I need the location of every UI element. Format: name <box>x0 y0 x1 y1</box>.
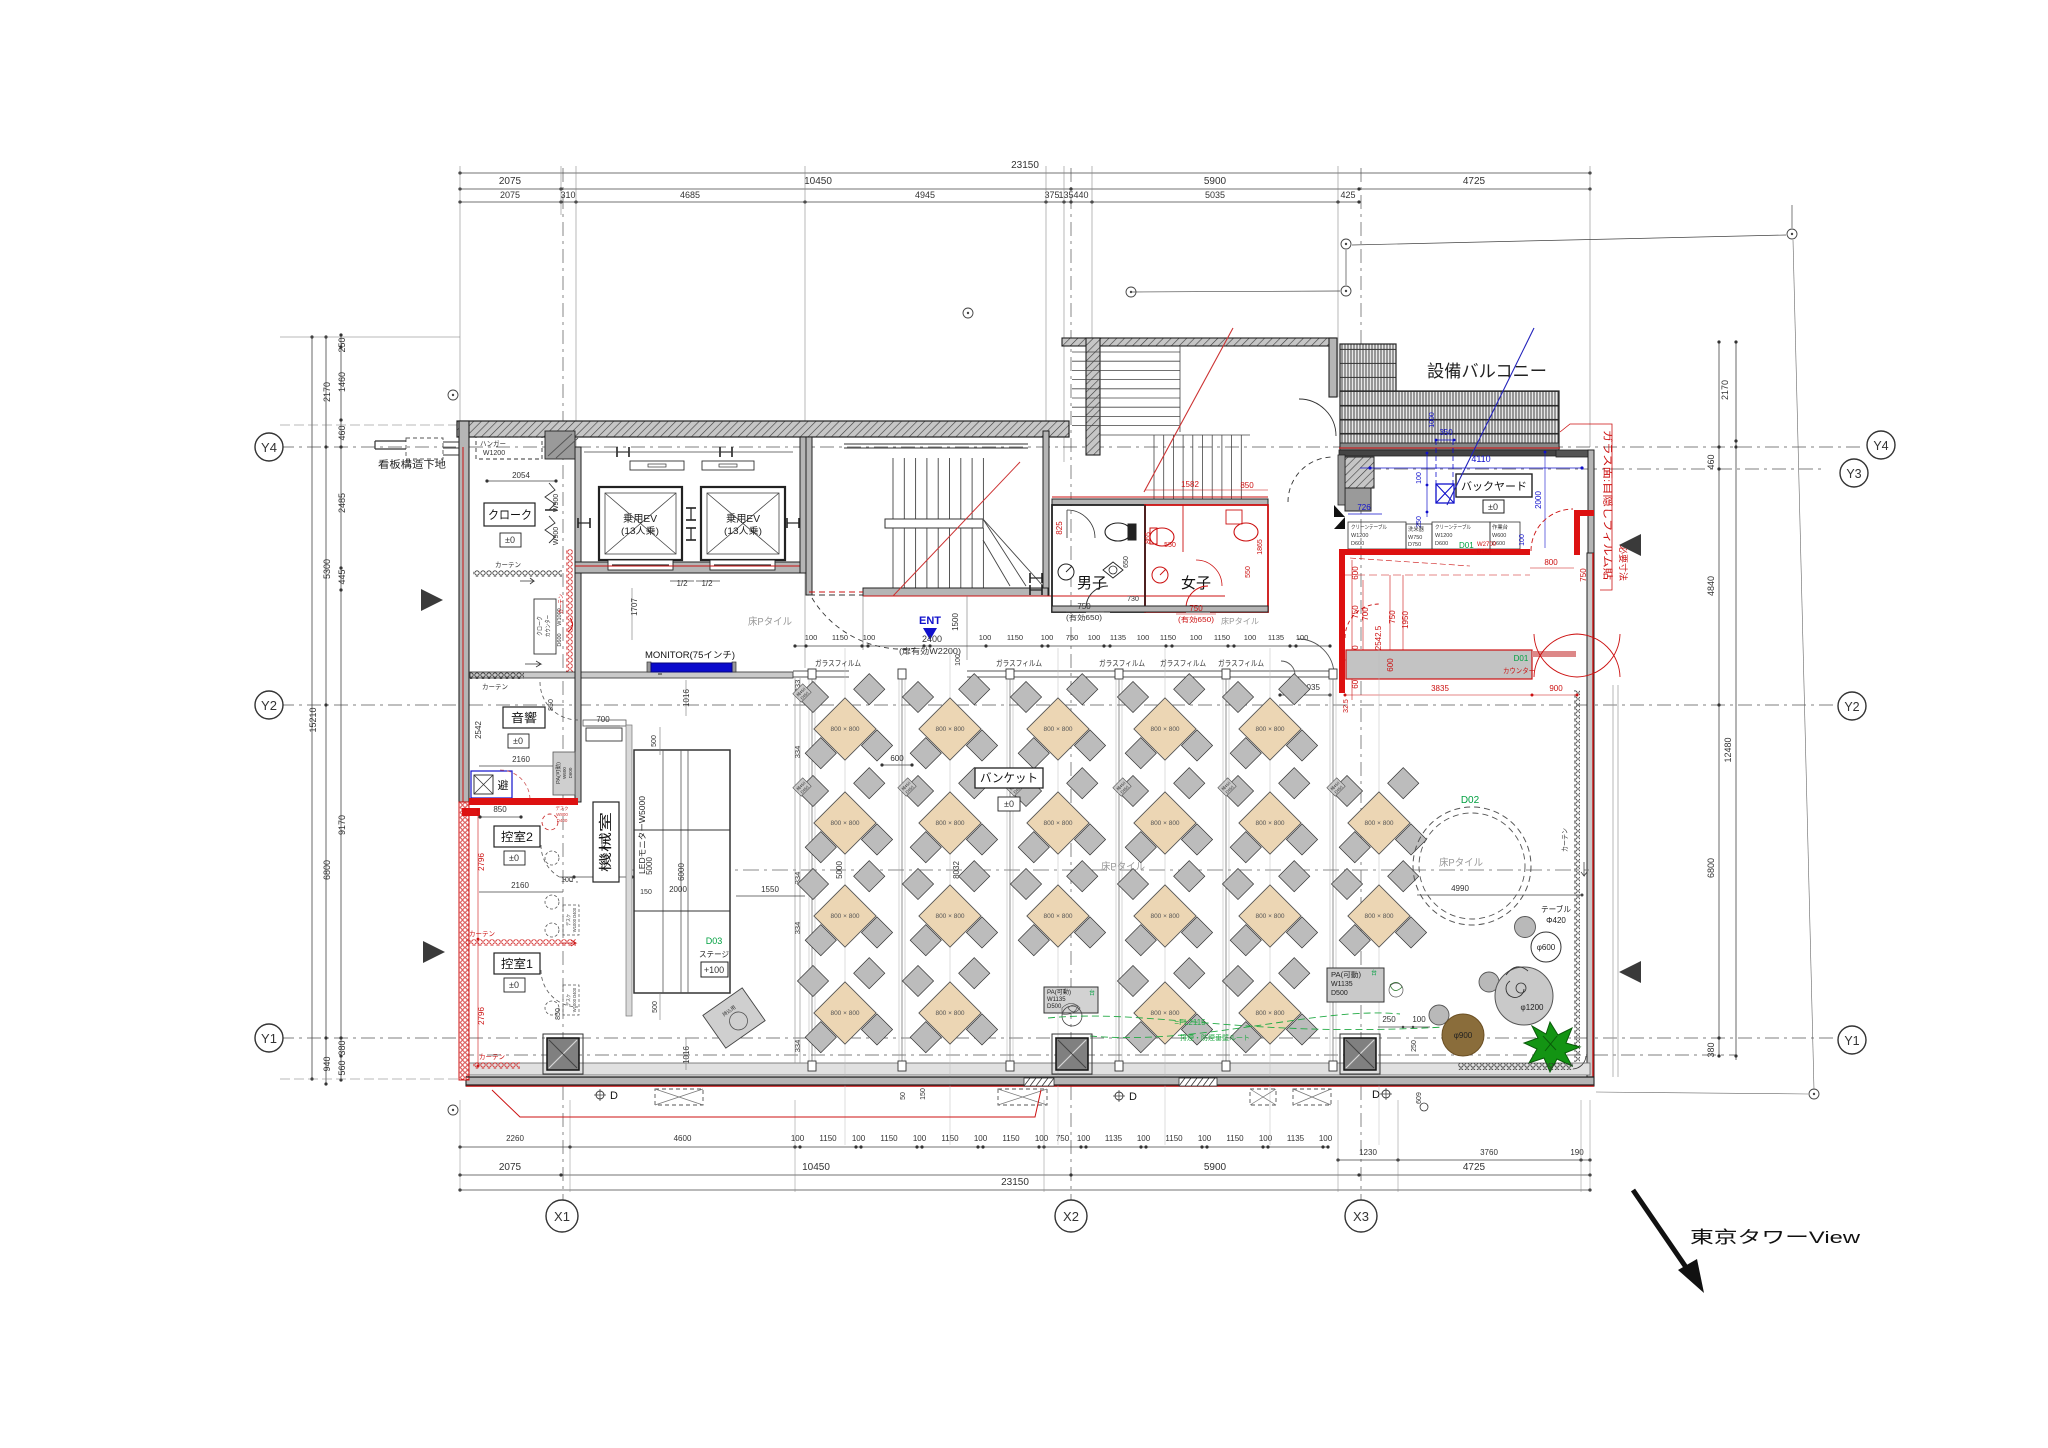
svg-text:PA(可動): PA(可動) <box>1331 970 1361 979</box>
svg-text:250: 250 <box>1382 1015 1396 1024</box>
svg-text:台: 台 <box>1089 989 1095 997</box>
svg-text:Y4: Y4 <box>261 440 277 455</box>
svg-text:500: 500 <box>651 735 658 747</box>
svg-text:Y1: Y1 <box>1844 1034 1859 1048</box>
svg-text:100: 100 <box>1296 633 1309 642</box>
svg-text:380: 380 <box>1706 1042 1716 1057</box>
svg-text:1135: 1135 <box>1105 1134 1123 1143</box>
svg-text:750: 750 <box>1189 604 1203 613</box>
svg-text:850: 850 <box>1240 481 1254 490</box>
svg-text:デスク: デスク <box>556 805 569 812</box>
svg-text:1000: 1000 <box>1429 412 1436 428</box>
svg-text:1150: 1150 <box>941 1134 959 1143</box>
svg-text:100: 100 <box>979 633 992 642</box>
svg-text:334: 334 <box>793 1040 802 1053</box>
svg-text:(13人乗): (13人乗) <box>621 525 659 536</box>
svg-text:W750: W750 <box>1408 535 1422 541</box>
svg-text:D600: D600 <box>557 633 563 646</box>
svg-text:1550: 1550 <box>761 885 779 894</box>
svg-text:100: 100 <box>1319 1134 1333 1143</box>
svg-text:Y2: Y2 <box>261 698 277 713</box>
svg-text:100: 100 <box>1077 1134 1091 1143</box>
svg-text:カーテン: カーテン <box>469 930 495 938</box>
svg-text:750: 750 <box>1579 568 1588 582</box>
svg-text:テーブル: テーブル <box>1541 904 1571 914</box>
svg-text:6800: 6800 <box>1706 858 1716 878</box>
svg-text:750: 750 <box>1388 610 1397 624</box>
svg-text:600: 600 <box>1351 566 1360 580</box>
svg-text:3835: 3835 <box>1431 684 1449 693</box>
svg-text:600: 600 <box>890 754 904 763</box>
svg-text:100: 100 <box>1190 633 1203 642</box>
svg-text:440: 440 <box>1073 190 1088 200</box>
svg-text:排煙・防煙垂壁ルート: 排煙・防煙垂壁ルート <box>1180 1033 1250 1042</box>
svg-text:100: 100 <box>561 877 573 884</box>
svg-text:1707: 1707 <box>630 598 639 616</box>
svg-text:4990: 4990 <box>1451 884 1469 893</box>
svg-text:4110: 4110 <box>1471 454 1490 464</box>
svg-text:100: 100 <box>1412 1015 1426 1024</box>
svg-text:W1135: W1135 <box>1331 981 1353 988</box>
svg-text:D: D <box>1129 1091 1137 1103</box>
svg-text:2160: 2160 <box>512 755 530 764</box>
svg-text:設備バルコニー: 設備バルコニー <box>1427 362 1547 381</box>
svg-text:2796: 2796 <box>477 853 486 871</box>
svg-text:W1000 D400: W1000 D400 <box>572 987 577 1012</box>
svg-text:865: 865 <box>1145 532 1152 544</box>
svg-text:375: 375 <box>1044 190 1059 200</box>
svg-text:100: 100 <box>863 633 876 642</box>
svg-text:カウンター: カウンター <box>544 615 552 637</box>
svg-text:音響: 音響 <box>511 710 537 725</box>
svg-text:D: D <box>610 1090 618 1102</box>
svg-text:100: 100 <box>1137 1134 1151 1143</box>
svg-text:D: D <box>1372 1089 1380 1101</box>
svg-text:±0: ±0 <box>1488 502 1498 512</box>
svg-text:380: 380 <box>337 1040 347 1055</box>
svg-text:ENT: ENT <box>919 615 941 627</box>
svg-text:12480: 12480 <box>1723 737 1733 762</box>
svg-text:100: 100 <box>913 1134 927 1143</box>
svg-text:100: 100 <box>1041 633 1054 642</box>
svg-text:Y2: Y2 <box>1844 700 1859 714</box>
svg-text:600: 600 <box>1386 658 1395 672</box>
svg-text:100: 100 <box>791 1134 805 1143</box>
svg-text:MONITOR(75インチ): MONITOR(75インチ) <box>645 650 735 660</box>
svg-text:クローク: クローク <box>488 508 532 522</box>
svg-text:乗用EV: 乗用EV <box>726 513 760 525</box>
svg-text:850: 850 <box>493 805 507 814</box>
svg-text:=FL2115: =FL2115 <box>1174 1018 1206 1027</box>
svg-text:2075: 2075 <box>499 1162 522 1173</box>
svg-text:1135: 1135 <box>1287 1134 1305 1143</box>
svg-text:必要寸法: 必要寸法 <box>1618 545 1629 581</box>
svg-text:2075: 2075 <box>500 190 520 200</box>
svg-text:560: 560 <box>337 1060 347 1075</box>
svg-text:2260: 2260 <box>506 1134 524 1143</box>
svg-text:445: 445 <box>337 569 347 584</box>
svg-text:1/2: 1/2 <box>676 579 688 588</box>
svg-text:クリーンテーブル: クリーンテーブル <box>1435 523 1471 531</box>
svg-text:バンケット: バンケット <box>980 771 1038 785</box>
svg-text:2170: 2170 <box>1720 380 1730 400</box>
svg-text:W2700: W2700 <box>1477 542 1497 548</box>
svg-text:1460: 1460 <box>337 372 347 392</box>
svg-text:カーテン: カーテン <box>1561 828 1569 852</box>
svg-text:控室2: 控室2 <box>501 829 533 844</box>
svg-text:クローク: クローク <box>537 616 544 636</box>
svg-text:D400: D400 <box>557 818 568 823</box>
svg-text:2000: 2000 <box>1534 491 1543 509</box>
svg-text:550: 550 <box>1245 566 1252 578</box>
svg-text:バックヤード: バックヤード <box>1461 480 1527 493</box>
svg-text:5035: 5035 <box>1205 190 1225 200</box>
svg-text:460: 460 <box>337 425 347 440</box>
svg-text:乗用EV: 乗用EV <box>623 513 657 525</box>
svg-text:23150: 23150 <box>1011 160 1039 171</box>
svg-text:ガラスフィルム: ガラスフィルム <box>996 658 1042 668</box>
svg-text:150: 150 <box>920 1088 927 1100</box>
svg-text:洗米器: 洗米器 <box>1408 525 1424 533</box>
svg-text:カウンター: カウンター <box>1503 666 1535 675</box>
svg-text:床Pタイル: 床Pタイル <box>1101 860 1145 873</box>
svg-text:1500: 1500 <box>951 613 960 631</box>
svg-text:W1200: W1200 <box>483 450 505 457</box>
svg-text:2485: 2485 <box>337 493 347 513</box>
svg-text:W1000 D400: W1000 D400 <box>572 907 577 932</box>
svg-text:機械室: 機械室 <box>598 812 613 872</box>
svg-text:190: 190 <box>1570 1148 1584 1157</box>
svg-text:D01: D01 <box>1459 541 1474 550</box>
svg-text:1150: 1150 <box>1007 633 1023 642</box>
svg-text:100: 100 <box>1259 1134 1273 1143</box>
svg-text:825: 825 <box>1055 521 1064 535</box>
svg-text:クリーンテーブル: クリーンテーブル <box>1351 523 1387 531</box>
svg-text:5000: 5000 <box>645 857 654 875</box>
svg-text:700: 700 <box>596 715 610 724</box>
svg-text:カーテン: カーテン <box>479 1053 505 1061</box>
svg-text:100: 100 <box>1244 633 1257 642</box>
svg-text:2000: 2000 <box>669 885 687 894</box>
svg-text:100: 100 <box>1088 633 1101 642</box>
svg-text:550: 550 <box>1164 542 1176 549</box>
svg-text:カーテン: カーテン <box>558 594 565 614</box>
svg-text:800: 800 <box>1544 558 1558 567</box>
svg-text:W1200: W1200 <box>1351 533 1368 539</box>
svg-text:男子: 男子 <box>1077 575 1107 592</box>
svg-text:1150: 1150 <box>1002 1134 1020 1143</box>
svg-text:100: 100 <box>1519 534 1526 546</box>
svg-text:2400: 2400 <box>922 634 942 644</box>
svg-text:334: 334 <box>793 922 802 935</box>
svg-text:作業台: 作業台 <box>1492 523 1508 531</box>
svg-text:PA(可動): PA(可動) <box>1047 988 1071 996</box>
svg-text:Y4: Y4 <box>1873 439 1888 453</box>
svg-text:±0: ±0 <box>509 853 519 863</box>
svg-text:1135: 1135 <box>1110 633 1126 642</box>
svg-text:10450: 10450 <box>802 1162 830 1173</box>
svg-text:ステージ: ステージ <box>699 950 729 959</box>
svg-text:850: 850 <box>548 699 555 711</box>
svg-text:ガラス面:目隠しフィルム貼: ガラス面:目隠しフィルム貼 <box>1601 430 1614 580</box>
svg-text:床Pタイル: 床Pタイル <box>1439 856 1483 869</box>
svg-text:台: 台 <box>1371 969 1377 977</box>
svg-text:1582: 1582 <box>1181 480 1199 489</box>
svg-text:250: 250 <box>1411 1040 1418 1052</box>
svg-text:±0: ±0 <box>505 535 515 545</box>
svg-text:±0: ±0 <box>509 980 519 990</box>
svg-text:650: 650 <box>1123 556 1130 568</box>
svg-text:1865: 1865 <box>1257 539 1264 555</box>
svg-text:X1: X1 <box>554 1209 570 1224</box>
svg-text:750: 750 <box>1066 633 1079 642</box>
svg-text:15210: 15210 <box>308 707 318 732</box>
svg-text:500: 500 <box>652 1001 659 1013</box>
svg-text:±0: ±0 <box>513 736 523 746</box>
svg-text:5900: 5900 <box>1204 176 1227 187</box>
svg-text:ガラスフィルム: ガラスフィルム <box>815 658 861 668</box>
svg-text:X2: X2 <box>1063 1209 1079 1224</box>
svg-text:1150: 1150 <box>819 1134 837 1143</box>
svg-text:避: 避 <box>498 778 509 792</box>
svg-text:2170: 2170 <box>322 382 332 402</box>
svg-text:460: 460 <box>1706 454 1716 469</box>
svg-text:150: 150 <box>640 889 652 896</box>
svg-text:9170: 9170 <box>337 815 347 835</box>
svg-text:PA(可動): PA(可動) <box>555 762 562 784</box>
svg-text:1230: 1230 <box>1359 1148 1377 1157</box>
svg-text:750: 750 <box>1077 602 1091 611</box>
svg-text:50: 50 <box>900 1092 907 1100</box>
svg-text:D01: D01 <box>1514 654 1529 663</box>
svg-text:100: 100 <box>1137 633 1150 642</box>
svg-text:±0: ±0 <box>1004 799 1014 809</box>
svg-text:3760: 3760 <box>1480 1148 1498 1157</box>
svg-text:4600: 4600 <box>674 1134 692 1143</box>
svg-text:ガラスフィルム: ガラスフィルム <box>1099 658 1145 668</box>
svg-text:D500: D500 <box>1047 1004 1062 1010</box>
svg-text:東京タワーView: 東京タワーView <box>1690 1228 1861 1247</box>
svg-text:23150: 23150 <box>1001 1177 1029 1188</box>
svg-text:W800: W800 <box>556 812 568 817</box>
svg-text:100: 100 <box>974 1134 988 1143</box>
svg-text:100: 100 <box>852 1134 866 1143</box>
svg-text:1150: 1150 <box>832 633 848 642</box>
svg-text:1016: 1016 <box>682 1046 691 1064</box>
svg-text:X3: X3 <box>1353 1209 1369 1224</box>
svg-text:1150: 1150 <box>880 1134 898 1143</box>
svg-text:φ900: φ900 <box>1454 1031 1473 1040</box>
svg-text:φ1200: φ1200 <box>1521 1003 1545 1012</box>
svg-text:カーテン: カーテン <box>482 683 508 691</box>
svg-text:2542.5: 2542.5 <box>1374 625 1383 650</box>
svg-text:100: 100 <box>1198 1134 1212 1143</box>
svg-text:φ600: φ600 <box>1537 943 1556 952</box>
svg-text:940: 940 <box>322 1056 332 1071</box>
svg-text:ハンガー: ハンガー <box>480 439 506 448</box>
svg-text:425: 425 <box>1340 190 1355 200</box>
svg-text:D600: D600 <box>1435 541 1448 547</box>
svg-text:床Pタイル: 床Pタイル <box>748 615 792 628</box>
svg-text:2542: 2542 <box>474 721 483 739</box>
svg-text:(有効650): (有効650) <box>1178 615 1214 624</box>
svg-text:D02: D02 <box>1461 795 1480 806</box>
svg-text:控室1: 控室1 <box>501 956 533 971</box>
svg-text:609: 609 <box>1416 1092 1423 1104</box>
svg-text:1950: 1950 <box>1401 611 1410 629</box>
svg-text:D350: D350 <box>1477 549 1492 555</box>
svg-text:D750: D750 <box>1408 542 1421 548</box>
svg-text:2160: 2160 <box>511 881 529 890</box>
svg-text:2796: 2796 <box>477 1007 486 1025</box>
svg-text:Φ420: Φ420 <box>1546 916 1566 925</box>
svg-text:Y3: Y3 <box>1846 467 1861 481</box>
svg-text:850: 850 <box>555 1008 562 1020</box>
svg-text:10450: 10450 <box>804 176 832 187</box>
svg-text:W1200: W1200 <box>1435 533 1452 539</box>
svg-text:100: 100 <box>805 633 818 642</box>
svg-text:D600: D600 <box>1351 541 1364 547</box>
svg-text:6000: 6000 <box>677 863 686 881</box>
svg-text:4685: 4685 <box>680 190 700 200</box>
svg-text:4725: 4725 <box>1463 1162 1486 1173</box>
svg-text:100: 100 <box>955 654 962 666</box>
svg-text:ガラスフィルム: ガラスフィルム <box>1160 658 1206 668</box>
svg-text:6800: 6800 <box>322 860 332 880</box>
svg-text:4945: 4945 <box>915 190 935 200</box>
svg-text:350: 350 <box>1439 428 1453 437</box>
svg-text:4840: 4840 <box>1706 576 1716 596</box>
svg-text:5000: 5000 <box>835 861 844 879</box>
svg-text:デスク: デスク <box>565 994 572 1006</box>
svg-text:1150: 1150 <box>1160 633 1176 642</box>
svg-text:334: 334 <box>793 746 802 759</box>
svg-text:Y1: Y1 <box>261 1031 277 1046</box>
svg-text:W900: W900 <box>553 527 560 545</box>
svg-text:1150: 1150 <box>1214 633 1230 642</box>
svg-text:+100: +100 <box>704 965 724 975</box>
svg-text:W600: W600 <box>562 767 567 779</box>
svg-text:32.5: 32.5 <box>1343 699 1350 713</box>
svg-text:デスク: デスク <box>565 914 572 926</box>
svg-text:1135: 1135 <box>1268 633 1284 642</box>
svg-text:D600: D600 <box>568 767 573 778</box>
svg-text:1150: 1150 <box>1165 1134 1183 1143</box>
svg-text:床Pタイル: 床Pタイル <box>1221 616 1259 626</box>
svg-text:W1135: W1135 <box>1047 997 1066 1003</box>
svg-text:1/2: 1/2 <box>701 579 713 588</box>
svg-text:726: 726 <box>1357 503 1371 512</box>
svg-text:5300: 5300 <box>322 559 332 579</box>
svg-text:カーテン: カーテン <box>495 561 521 569</box>
svg-text:730: 730 <box>1127 596 1139 603</box>
svg-text:ガラスフィルム: ガラスフィルム <box>1218 658 1264 668</box>
svg-text:5900: 5900 <box>1204 1162 1227 1173</box>
svg-text:(13人乗): (13人乗) <box>724 525 762 536</box>
svg-text:(有効650): (有効650) <box>1066 613 1102 622</box>
svg-text:2054: 2054 <box>512 471 530 480</box>
svg-text:1016: 1016 <box>682 689 691 707</box>
svg-text:100: 100 <box>1035 1134 1049 1143</box>
svg-text:D03: D03 <box>706 936 723 946</box>
svg-text:W600: W600 <box>1492 533 1506 539</box>
svg-text:4725: 4725 <box>1463 176 1486 187</box>
svg-text:250: 250 <box>337 337 347 352</box>
svg-text:100: 100 <box>1416 472 1423 484</box>
svg-text:D500: D500 <box>1331 990 1348 997</box>
svg-text:900: 900 <box>1549 684 1563 693</box>
svg-text:看板構造下地: 看板構造下地 <box>378 458 446 471</box>
svg-text:1150: 1150 <box>1226 1134 1244 1143</box>
svg-text:2075: 2075 <box>499 176 522 187</box>
